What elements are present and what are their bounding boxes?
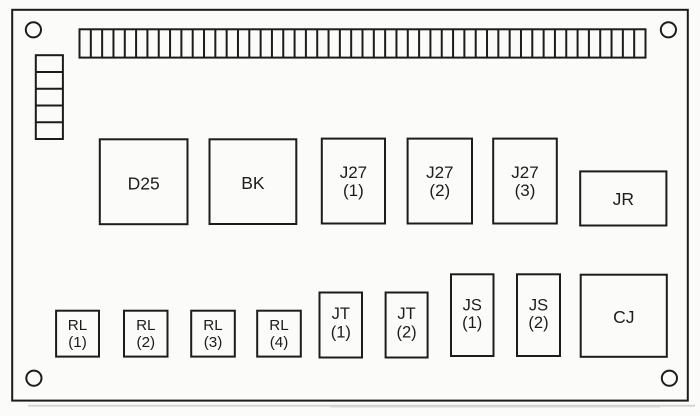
svg-text:JT: JT bbox=[332, 305, 350, 323]
svg-text:JT: JT bbox=[397, 305, 415, 323]
svg-text:(2): (2) bbox=[137, 334, 156, 351]
svg-text:RL: RL bbox=[136, 317, 155, 334]
svg-text:(2): (2) bbox=[429, 181, 450, 200]
svg-text:(1): (1) bbox=[462, 314, 482, 332]
svg-text:RL: RL bbox=[269, 317, 288, 334]
svg-text:RL: RL bbox=[68, 317, 87, 334]
svg-text:(3): (3) bbox=[204, 334, 223, 351]
svg-text:J27: J27 bbox=[426, 163, 453, 182]
svg-text:RL: RL bbox=[203, 317, 222, 334]
svg-text:JS: JS bbox=[463, 296, 482, 314]
svg-text:D25: D25 bbox=[128, 173, 160, 193]
svg-text:(3): (3) bbox=[515, 181, 536, 200]
svg-text:(4): (4) bbox=[270, 334, 289, 351]
svg-text:(1): (1) bbox=[343, 181, 364, 200]
svg-text:CJ: CJ bbox=[613, 307, 634, 327]
svg-text:(2): (2) bbox=[397, 324, 417, 342]
svg-text:BK: BK bbox=[241, 173, 265, 193]
svg-text:(1): (1) bbox=[331, 324, 351, 342]
svg-text:(1): (1) bbox=[68, 334, 87, 351]
svg-text:J27: J27 bbox=[340, 163, 367, 182]
svg-text:J27: J27 bbox=[511, 163, 538, 182]
svg-text:(2): (2) bbox=[528, 314, 548, 332]
svg-text:JR: JR bbox=[613, 189, 634, 209]
svg-text:JS: JS bbox=[529, 296, 548, 314]
